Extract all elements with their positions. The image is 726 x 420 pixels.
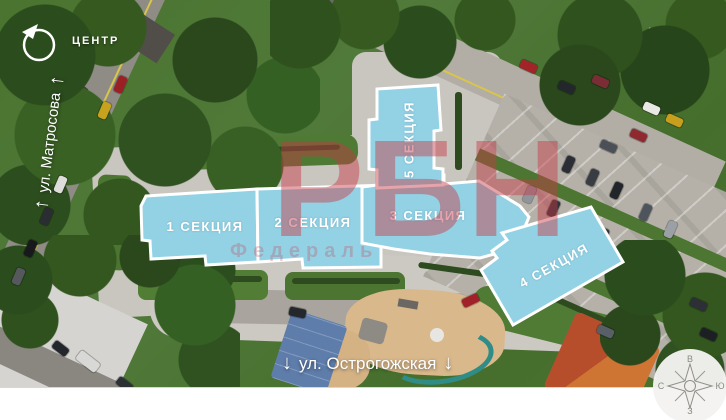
- compass-rose: В Ю З С: [650, 348, 726, 420]
- footer-strip: [0, 387, 726, 420]
- section-2-label: 2 СЕКЦИЯ: [258, 215, 368, 230]
- compass-north: С: [658, 381, 665, 391]
- arrow-icon: ↓: [443, 352, 453, 375]
- compass-west: З: [687, 406, 692, 416]
- street-name: ул. Острогожская: [299, 354, 436, 374]
- center-direction-icon: [16, 20, 62, 66]
- center-direction-label: ЦЕНТР: [72, 35, 119, 47]
- section-5-label: 5 СЕКЦИЯ: [402, 82, 417, 198]
- arrow-icon: ↓: [282, 352, 292, 375]
- compass-south: Ю: [715, 381, 724, 391]
- site-plan: 1 СЕКЦИЯ 2 СЕКЦИЯ 3 СЕКЦИЯ 4 СЕКЦИЯ 5 СЕ…: [0, 0, 726, 420]
- arrow-icon: ↑: [45, 74, 69, 87]
- compass-east: В: [687, 354, 693, 364]
- street-label-ostrogozhskaya: ↓ ул. Острогожская ↓: [282, 352, 453, 375]
- section-3-label: 3 СЕКЦИЯ: [372, 208, 484, 223]
- section-1-label: 1 СЕКЦИЯ: [152, 219, 258, 234]
